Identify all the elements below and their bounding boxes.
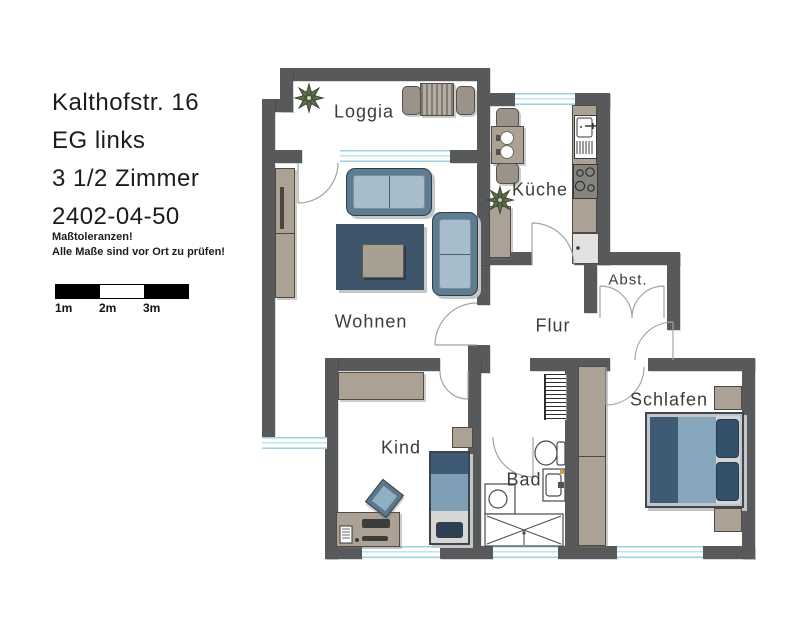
wall [440,546,493,559]
door-arc-kueche [532,223,574,265]
floor-line: EG links [52,122,199,160]
wall [584,265,597,313]
floor-plan: Kalthofstr. 16 EG links 3 1/2 Zimmer 240… [0,0,800,640]
wohnen-cabinet [275,168,295,298]
window-wohnen [262,437,327,449]
nightstand-bottom [714,508,742,532]
scale-label-1m: 1m [55,301,99,315]
window-kueche [515,93,575,106]
wall [325,546,362,559]
sofa-cushions [439,219,471,289]
cabinet-handle [280,187,284,229]
wall [648,358,755,371]
wall [477,81,490,305]
coffee-table [362,244,404,278]
door-arc-abst-left [600,286,632,318]
wall [490,93,515,106]
bed-double [645,412,744,508]
scale-segment-black [144,285,188,298]
pillow [716,462,739,501]
kind-wardrobe [338,372,424,400]
wall [667,252,680,330]
wall [275,150,302,163]
scale-label-3m: 3m [143,301,187,315]
wall [703,546,755,559]
scale-bar [55,284,189,299]
nightstand-top [714,386,742,410]
scale-segment-white [100,285,144,298]
loggia-chair-right [456,86,475,115]
wall [262,99,275,437]
wall [325,358,440,371]
kitchen-appliance [572,233,599,264]
plant-stand [489,206,511,258]
window-loggia-wohnen [340,150,450,163]
pillow [716,419,739,458]
notice-line-2: Alle Maße sind vor Ort zu prüfen! [52,245,225,260]
sofa-large [346,168,432,216]
wall [280,68,490,81]
room-label-loggia: Loggia [334,102,394,123]
window-kind [362,546,440,559]
bed-object [436,522,463,538]
loggia-table [420,83,454,116]
bed-blanket-light [678,417,716,503]
toilet-icon [535,441,565,465]
loggia-chair-left [402,86,421,115]
room-label-abstellraum: Abst. [608,272,647,289]
bed-blanket-dark [431,453,468,474]
room-label-kueche: Küche [512,180,568,201]
bed-blanket-dark [650,417,678,503]
washbasin-icon [543,469,565,501]
radiator [544,374,567,420]
bed-single [429,451,470,545]
room-label-wohnen: Wohnen [335,312,408,333]
kind-nightstand [452,427,473,448]
window-schlafen [617,546,703,559]
sofa-small [432,212,478,296]
tolerance-notice: Maßtoleranzen! Alle Maße sind vor Ort zu… [52,230,225,260]
room-label-schlafen: Schlafen [630,390,708,411]
room-label-bad: Bad [506,470,541,491]
bathtub-icon [485,514,563,546]
kitchen-sink [574,115,597,159]
address-line: Kalthofstr. 16 [52,84,199,122]
door-arc-kind [440,371,468,399]
cooktop [573,164,598,199]
bed-blanket-light [431,474,468,511]
kitchen-table [491,126,524,164]
door-arc-loggia [298,163,338,203]
door-arc-abst-right [632,286,664,318]
door-arc-wohnen [435,303,477,345]
room-label-kind: Kind [381,438,421,459]
sofa-cushions [353,175,425,209]
scale-segment-black [56,285,100,298]
apartment-type-line: 3 1/2 Zimmer [52,160,199,198]
scale-labels: 1m 2m 3m [55,301,205,315]
schlafen-wardrobe [578,366,606,546]
wall [558,546,617,559]
scale-label-2m: 2m [99,301,143,315]
window-bad [493,546,558,559]
desk [336,512,400,547]
room-label-flur: Flur [536,316,571,337]
notice-line-1: Maßtoleranzen! [52,230,225,245]
title-block: Kalthofstr. 16 EG links 3 1/2 Zimmer 240… [52,84,199,236]
plant-icon-loggia [295,84,323,112]
